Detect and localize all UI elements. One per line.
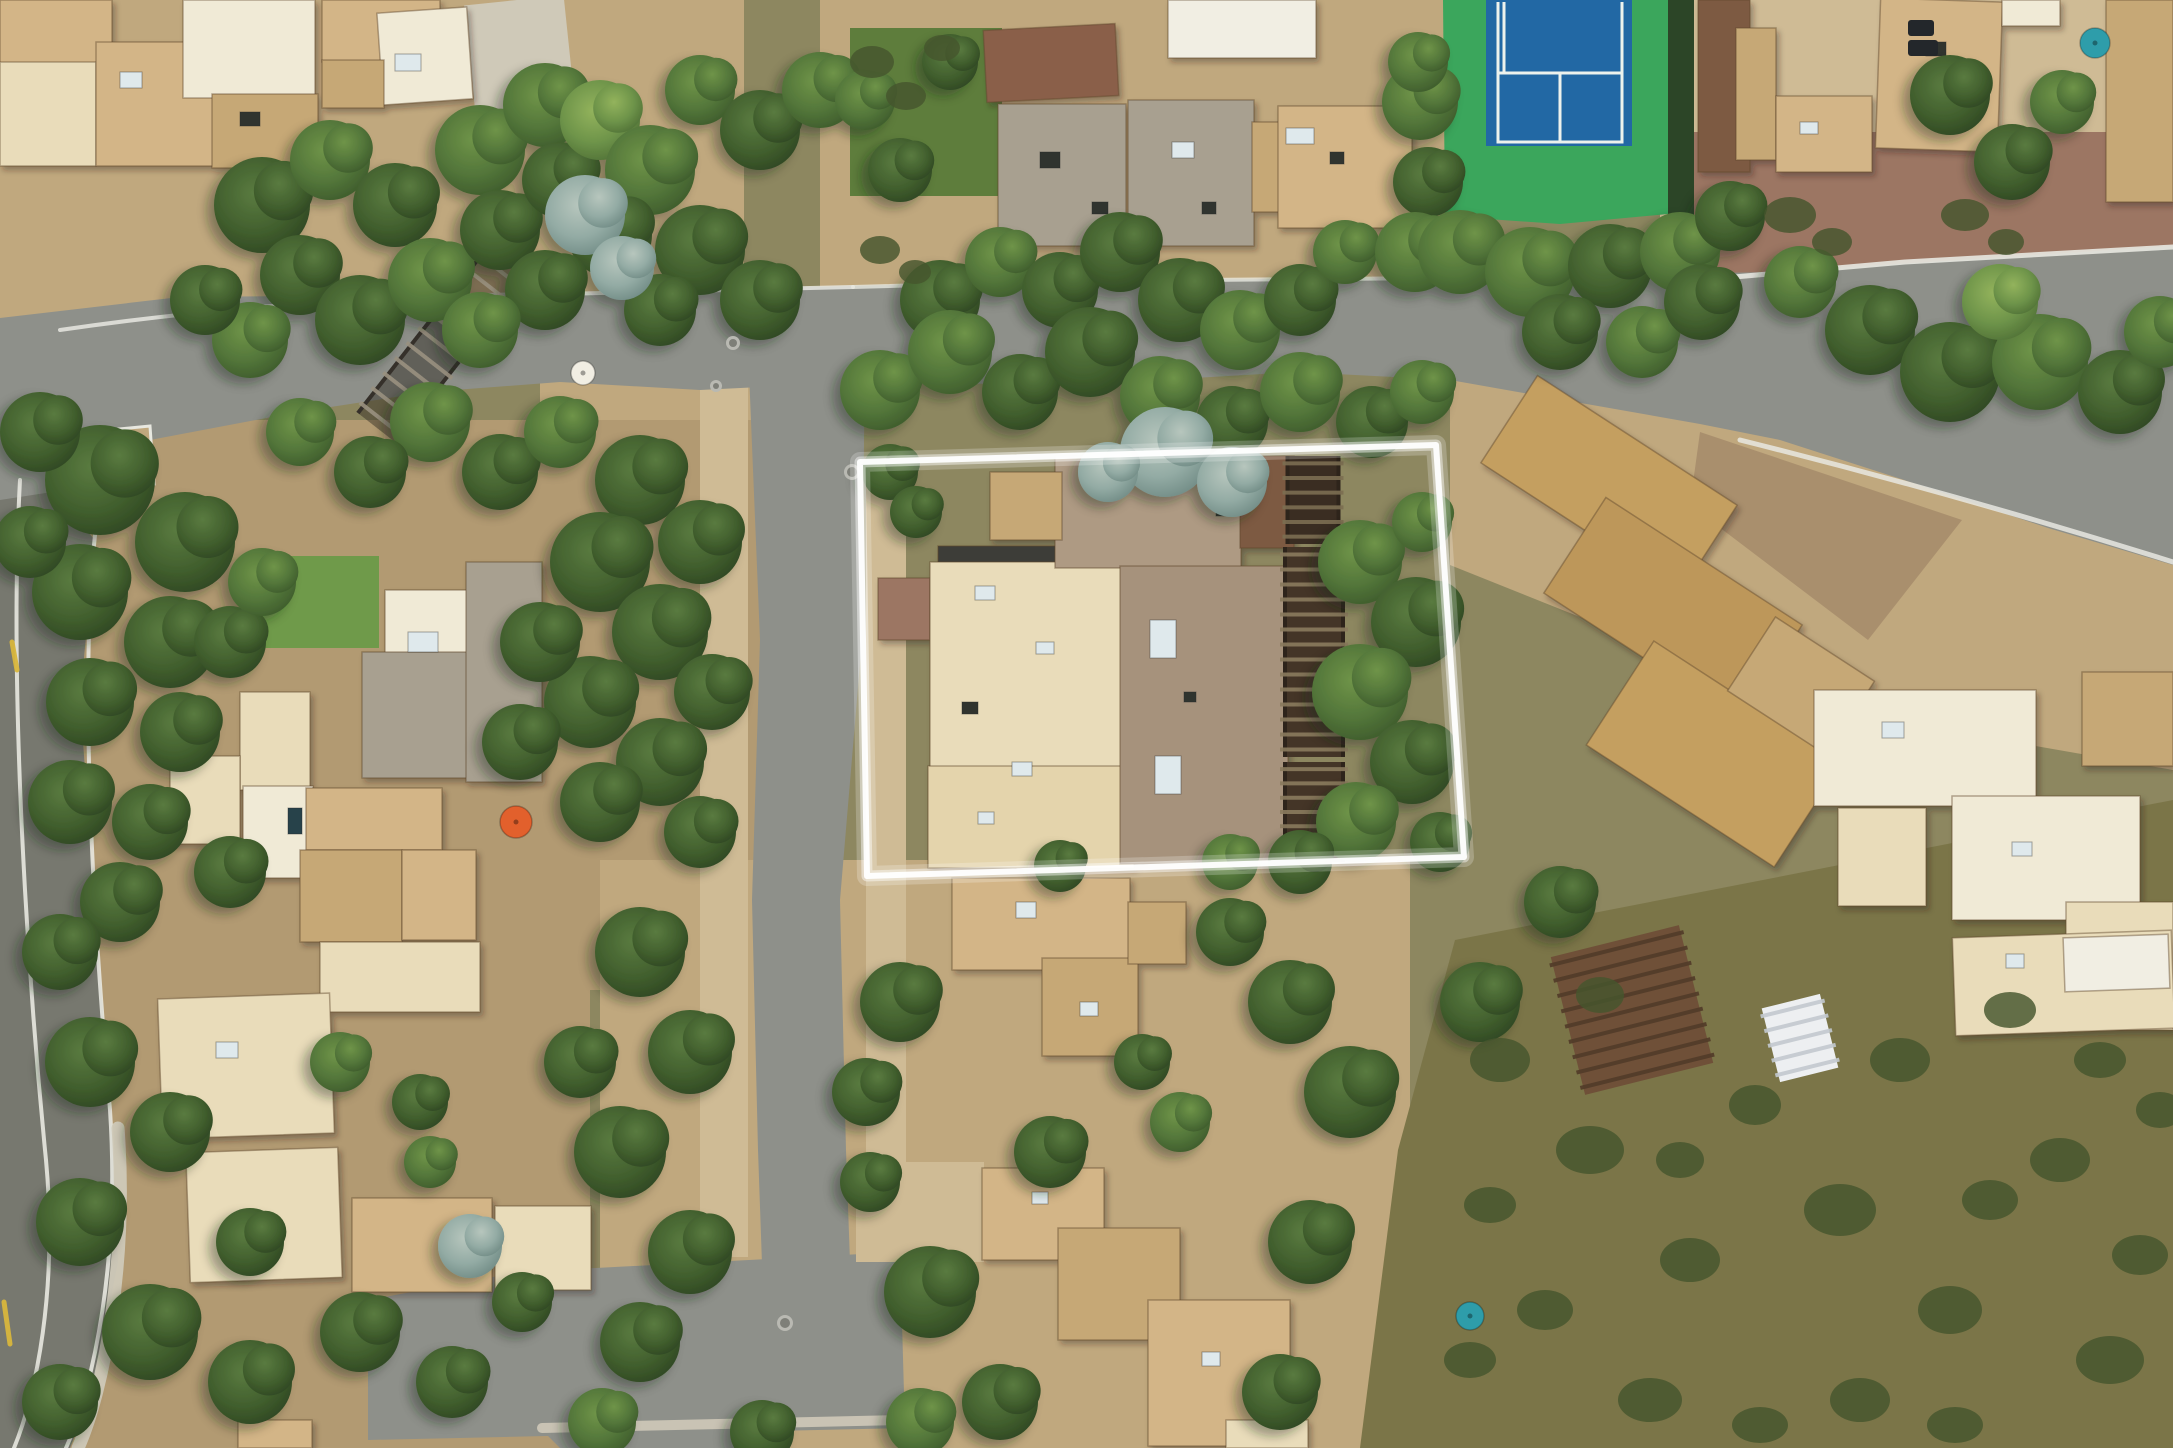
skylight (1172, 142, 1194, 158)
skylight (1032, 1192, 1048, 1204)
bush (1927, 1407, 1983, 1443)
skylight (1286, 128, 1314, 144)
bush (924, 35, 960, 61)
tree-lobe (1340, 223, 1380, 263)
building-roof (240, 692, 310, 790)
skylight (1882, 722, 1904, 738)
tree-lobe (364, 439, 409, 484)
tree-lobe (893, 965, 943, 1015)
tree-lobe (2057, 73, 2097, 113)
tree-lobe (1113, 215, 1163, 265)
ac-unit (1184, 692, 1196, 702)
building-roof (1814, 690, 2036, 806)
tree-lobe (533, 605, 583, 655)
tree-lobe (1417, 363, 1457, 403)
tree-lobe (912, 488, 944, 520)
tree-lobe (1283, 963, 1335, 1015)
tree-lobe (617, 239, 657, 279)
building-roof (2082, 672, 2173, 766)
tree-lobe (54, 1367, 101, 1414)
building-roof (320, 942, 480, 1012)
bush (2112, 1235, 2168, 1275)
tree-lobe (163, 1095, 213, 1145)
building-roof (306, 788, 442, 850)
tree-lobe (323, 123, 373, 173)
ac-unit (962, 702, 978, 714)
building-roof (1776, 96, 1872, 172)
skylight (978, 812, 994, 824)
bush (1918, 1286, 1982, 1334)
skylight (408, 632, 438, 652)
tree-lobe (244, 305, 291, 352)
parked-car (1908, 20, 1934, 36)
aerial-photo (0, 0, 2173, 1448)
bush (1660, 1238, 1720, 1282)
tree-lobe (865, 1154, 902, 1191)
tree-lobe (582, 660, 639, 717)
tree-lobe (1554, 297, 1601, 344)
building-roof (952, 878, 1130, 970)
tree-lobe (514, 707, 561, 754)
building-roof (2106, 0, 2173, 202)
skylight (975, 586, 995, 600)
tree-lobe (1303, 1203, 1355, 1255)
tree-lobe (2006, 127, 2053, 174)
ac-unit (1202, 202, 1216, 214)
tree-lobe (173, 695, 223, 745)
skylight (1012, 762, 1032, 776)
manhole-cover-inner (780, 1318, 790, 1328)
tree-lobe (632, 439, 688, 495)
bush (1464, 1187, 1516, 1223)
ac-unit (240, 112, 260, 126)
skylight (120, 72, 142, 88)
skylight (1036, 642, 1054, 654)
tree-lobe (593, 765, 643, 815)
building-roof (1128, 902, 1186, 964)
tree-lobe (683, 1213, 735, 1265)
tree-lobe (1696, 267, 1743, 314)
bush (1941, 199, 1989, 231)
bush (1656, 1142, 1704, 1178)
patio-umbrella-pole (1468, 1314, 1473, 1319)
tree-lobe (423, 385, 473, 435)
tree-lobe (83, 662, 138, 717)
tree-lobe (1274, 1357, 1321, 1404)
tree-lobe (294, 401, 336, 443)
tree-lobe (1352, 648, 1412, 708)
tree-lobe (692, 209, 748, 265)
skylight (2012, 842, 2032, 856)
ac-unit (1330, 152, 1344, 164)
patio-umbrella-pole (2093, 41, 2098, 46)
tree-lobe (224, 839, 269, 884)
tree-lobe (63, 763, 115, 815)
tree-lobe (654, 277, 699, 322)
tree-lobe (177, 496, 239, 558)
tree-lobe (1422, 150, 1465, 193)
bush (1444, 1342, 1496, 1378)
skylight (1080, 1002, 1098, 1016)
tree-lobe (1862, 289, 1918, 345)
tree-lobe (415, 1076, 450, 1111)
skylight (1016, 902, 1036, 918)
tree-lobe (293, 238, 343, 288)
bush (1470, 1038, 1530, 1082)
bush (1870, 1038, 1930, 1082)
tree-lobe (612, 1110, 669, 1167)
tree-lobe (683, 1013, 735, 1065)
skylight (2006, 954, 2024, 968)
bush (1962, 1180, 2018, 1220)
tree-lobe (474, 295, 521, 342)
bush (1729, 1085, 1781, 1125)
tree-lobe (91, 429, 159, 497)
tree-lobe (1224, 901, 1266, 943)
tree-lobe (1293, 355, 1343, 405)
tree-lobe (1153, 359, 1203, 409)
patio-umbrella-pole (514, 820, 519, 825)
bush (2076, 1336, 2144, 1384)
skylight (395, 54, 421, 71)
tree-lobe (1349, 785, 1399, 835)
parked-car (1908, 40, 1938, 56)
tree-lobe (1044, 1119, 1089, 1164)
tree-lobe (72, 548, 132, 608)
tree-lobe (82, 1021, 138, 1077)
building-roof (930, 562, 1126, 770)
building-roof (1838, 808, 1926, 906)
tree-lobe (860, 1061, 902, 1103)
tree-lobe (54, 917, 101, 964)
bush (899, 260, 931, 284)
building-roof (183, 0, 315, 98)
bush (1804, 1184, 1876, 1236)
tree-lobe (914, 1391, 956, 1433)
skylight (216, 1042, 238, 1058)
building-roof (377, 7, 473, 105)
building-roof (878, 578, 930, 640)
building-roof (1168, 0, 1316, 58)
manhole-cover-inner (729, 339, 737, 347)
building-roof (928, 766, 1134, 868)
bush (850, 46, 894, 78)
tree-lobe (426, 1138, 458, 1170)
tree-lobe (706, 657, 753, 704)
tree-lobe (652, 588, 712, 648)
bush (1830, 1378, 1890, 1422)
tree-lobe (33, 395, 83, 445)
building-roof (300, 850, 402, 942)
tree-lobe (1137, 1036, 1172, 1071)
bush (860, 236, 900, 264)
tree-lobe (538, 253, 588, 303)
skylight (1202, 1352, 1220, 1366)
tree-lobe (574, 1029, 619, 1074)
tree-lobe (633, 1305, 683, 1355)
bush (1732, 1407, 1788, 1443)
tree-lobe (694, 58, 737, 101)
tennis-court (1443, 0, 1694, 224)
building-roof (322, 60, 384, 108)
manhole-cover-inner (713, 383, 719, 389)
tree-lobe (1994, 267, 2041, 314)
tree-lobe (24, 509, 69, 554)
tree-lobe (73, 1182, 128, 1237)
tree-lobe (144, 787, 191, 834)
tree-lobe (943, 313, 995, 365)
bush (2030, 1138, 2090, 1182)
ac-unit (1092, 202, 1108, 214)
tree-lobe (757, 1403, 797, 1443)
tree-lobe (1082, 311, 1138, 367)
tree-lobe (694, 799, 739, 844)
bush (2074, 1042, 2126, 1078)
tree-lobe (388, 166, 440, 218)
building-roof (2002, 0, 2060, 26)
bush (886, 82, 926, 110)
tree-lobe (2032, 318, 2092, 378)
skylight (288, 808, 302, 834)
building-roof (362, 652, 476, 778)
tree-lobe (994, 1367, 1041, 1414)
tree-lobe (142, 1288, 202, 1348)
tree-lobe (1342, 1050, 1399, 1107)
bush (1556, 1126, 1624, 1174)
ac-unit (1040, 152, 1060, 168)
skylight (1150, 620, 1176, 658)
aerial-photo-svg (0, 0, 2173, 1448)
building-roof (402, 850, 476, 940)
tree-lobe (1175, 1094, 1212, 1131)
tree-lobe (592, 516, 654, 578)
bush (1618, 1378, 1682, 1422)
bush (1984, 992, 2036, 1028)
tree-lobe (1724, 184, 1767, 227)
tree-lobe (596, 1391, 638, 1433)
building-roof (1120, 566, 1288, 864)
bush (1812, 228, 1852, 256)
tree-lobe (642, 129, 698, 185)
building-roof (983, 24, 1119, 103)
tree-lobe (335, 1034, 372, 1071)
tree-lobe (446, 1349, 491, 1394)
tree-lobe (753, 263, 803, 313)
tree-lobe (653, 722, 708, 777)
building-roof (990, 472, 1062, 540)
skylight (1155, 756, 1181, 794)
tree-lobe (1943, 58, 1993, 108)
tree-lobe (353, 1295, 403, 1345)
tree-lobe (1473, 965, 1523, 1015)
building-roof (0, 62, 96, 166)
tree-lobe (578, 178, 628, 228)
tennis-court-hedge (1668, 0, 1694, 220)
tree-lobe (1413, 34, 1450, 71)
tree-lobe (256, 551, 298, 593)
tree-lobe (243, 1343, 295, 1395)
tree-lobe (517, 1274, 554, 1311)
tree-lobe (693, 503, 745, 555)
building-roof (1736, 28, 1776, 160)
skylight (1800, 122, 1818, 134)
tree-lobe (465, 1217, 505, 1257)
tree-lobe (922, 1250, 979, 1307)
building-roof (238, 1420, 312, 1448)
patio-umbrella-pole (581, 371, 586, 376)
tree-lobe (244, 1211, 286, 1253)
bush (1576, 977, 1624, 1013)
tree-lobe (113, 865, 163, 915)
bush (1764, 197, 1816, 233)
bush (1988, 229, 2024, 255)
building-roof (2063, 934, 2170, 992)
tree-lobe (1554, 869, 1599, 914)
tree-lobe (895, 141, 935, 181)
tree-lobe (632, 911, 688, 967)
tree-lobe (554, 399, 599, 444)
tree-lobe (593, 83, 643, 133)
tree-lobe (199, 268, 242, 311)
bush (1517, 1290, 1573, 1330)
